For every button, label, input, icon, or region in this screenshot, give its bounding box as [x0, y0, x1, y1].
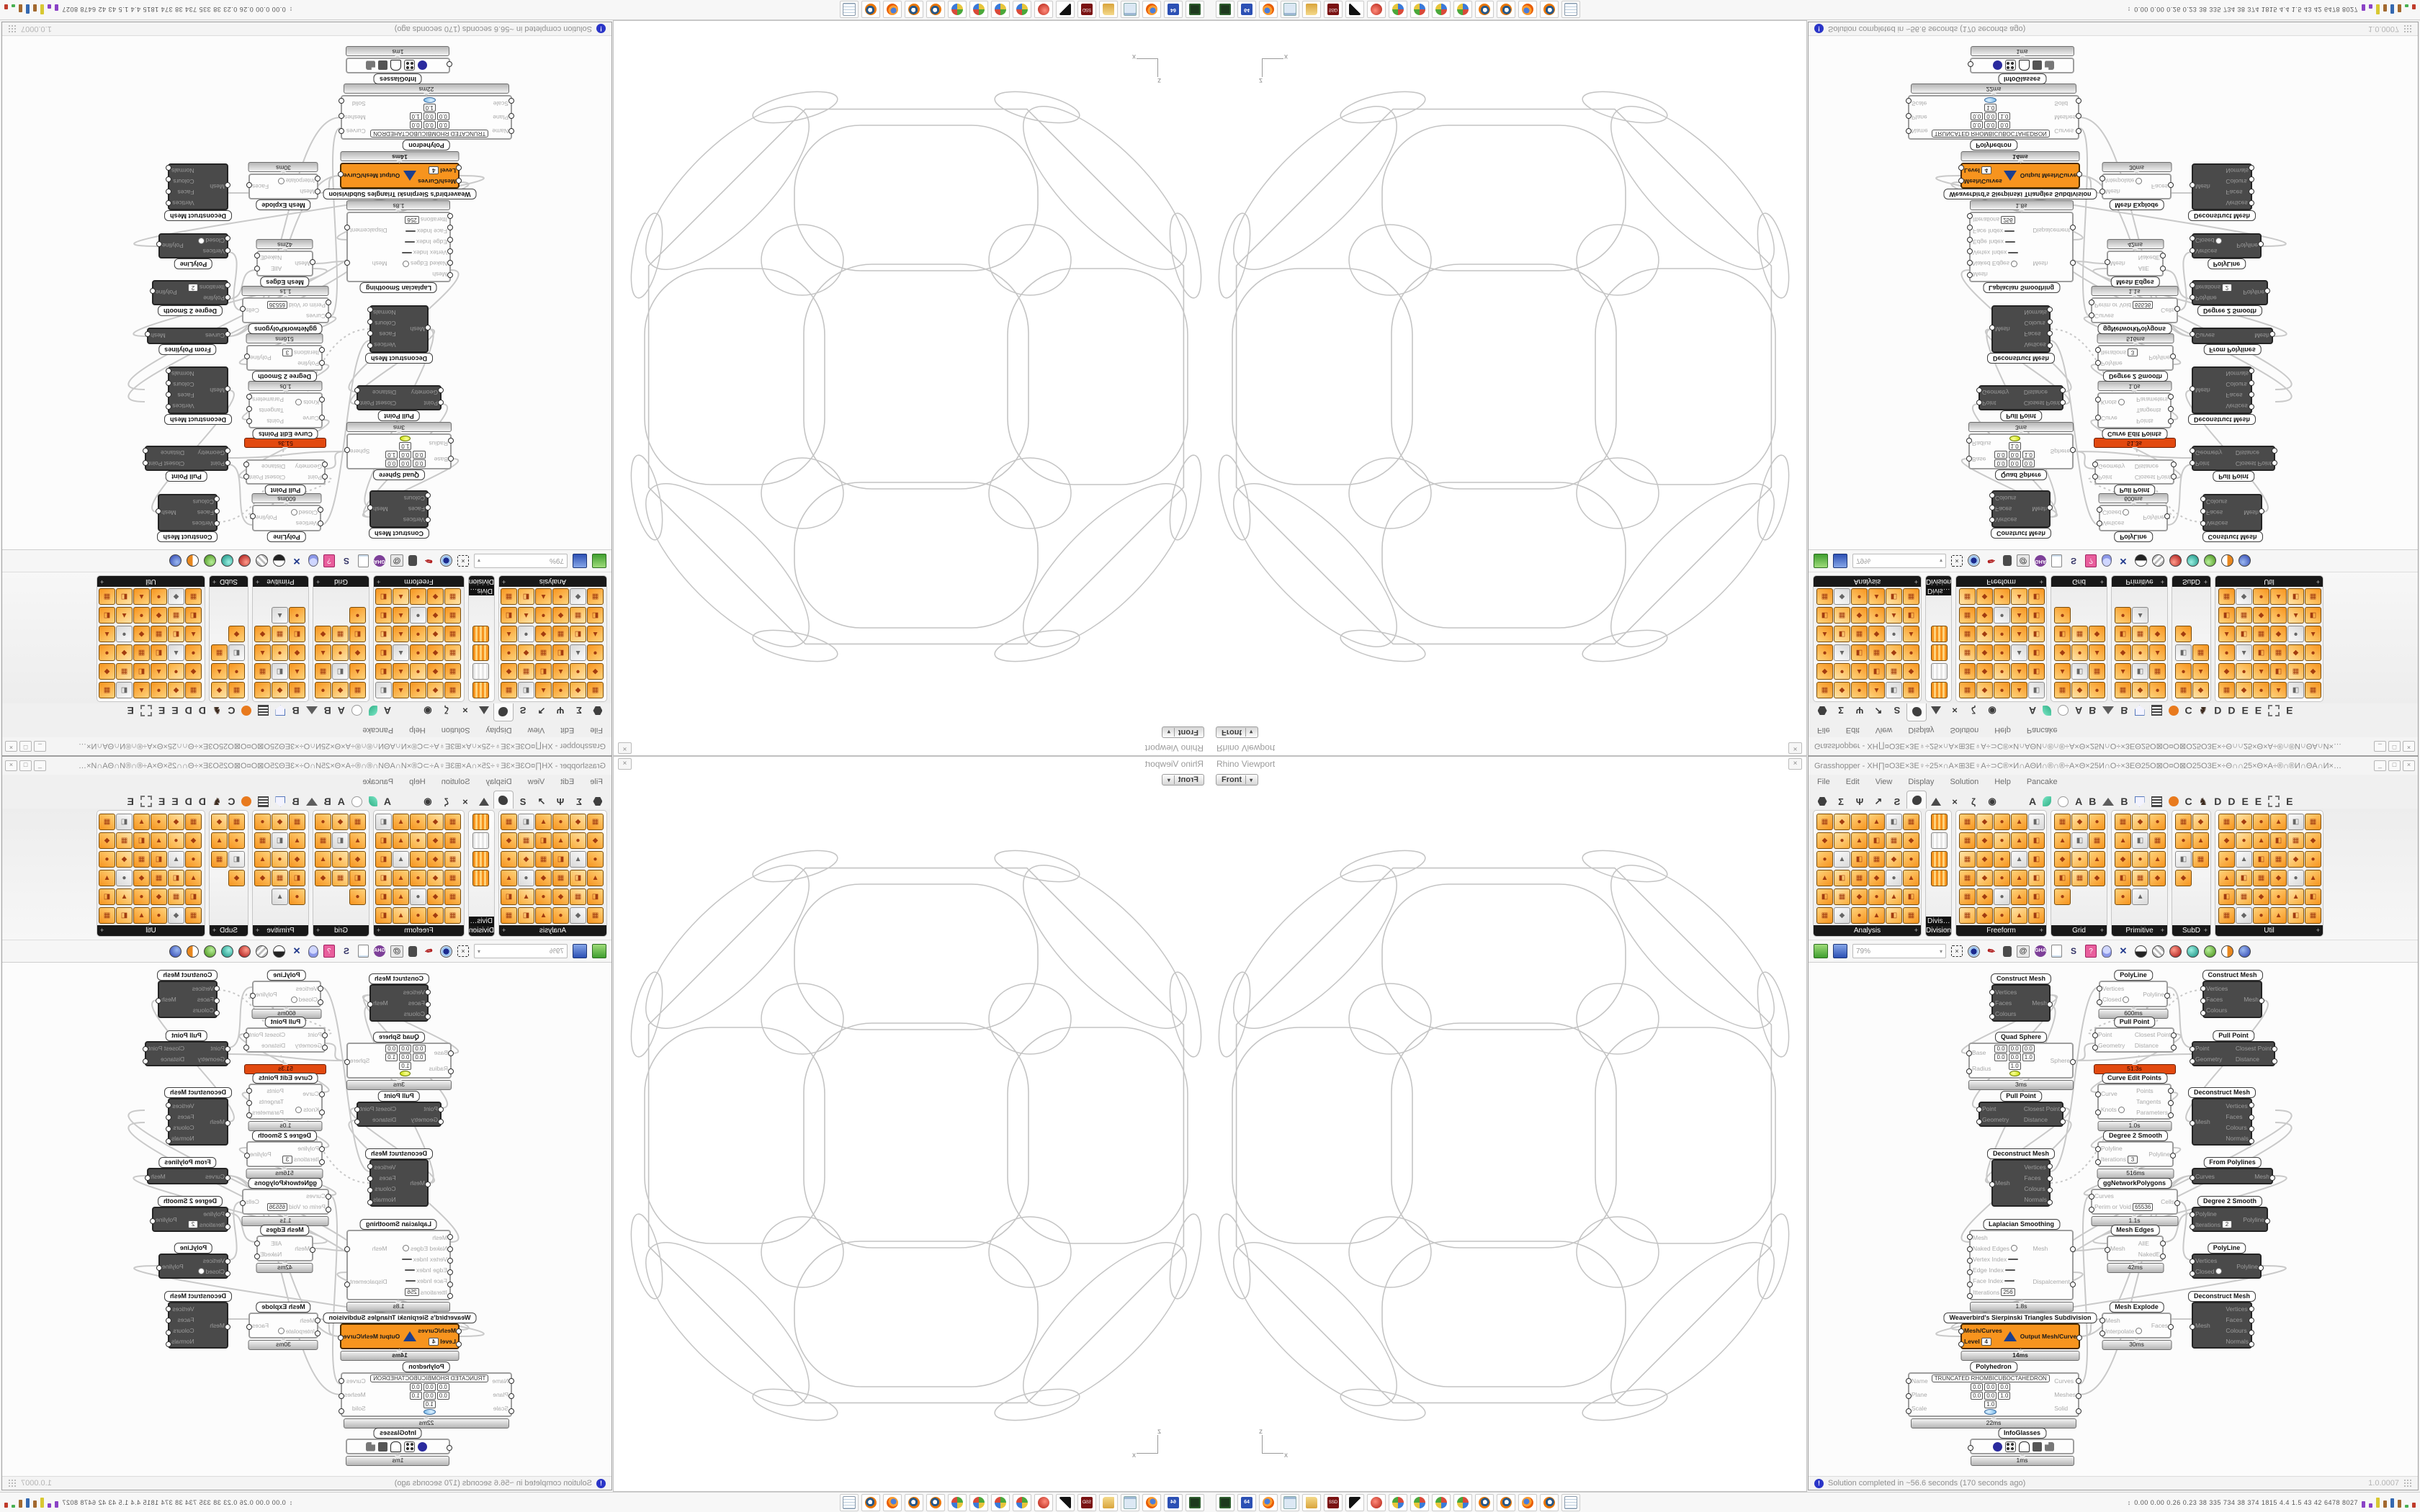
value-box[interactable]: 65536	[2133, 1203, 2153, 1211]
input-pin[interactable]	[2190, 1120, 2195, 1126]
value-box[interactable]: 0.0	[2022, 459, 2035, 467]
node-output[interactable]: Polyline	[2148, 1151, 2170, 1158]
component-icon[interactable]: ▲	[349, 663, 366, 680]
node-output[interactable]: Faces	[252, 1322, 269, 1329]
input-pin[interactable]	[1958, 1341, 1964, 1347]
node-input[interactable]: Point	[198, 1045, 225, 1052]
node-input[interactable]: Polyline	[2101, 1145, 2138, 1152]
panel-label[interactable]: Util+	[2215, 925, 2323, 936]
node-output[interactable]: Vertices	[171, 1102, 194, 1110]
grasshopper-titlebar[interactable]: Grasshopper - XH∏¤O3E×3E♀÷25×∩A×⊞3E♀A÷⊃C…	[1809, 757, 2418, 775]
component-icon[interactable]: ▦	[2054, 814, 2071, 830]
gh-node-polyline[interactable]: PolyLineVerticesClosedPolyline	[2192, 233, 2262, 258]
component-icon[interactable]: ◆	[518, 644, 534, 661]
addon-tab-E-14[interactable]: E	[171, 705, 178, 716]
preview-half-icon[interactable]	[2135, 555, 2147, 567]
resize-grip[interactable]	[2403, 1479, 2412, 1488]
component-icon[interactable]: ▲	[2011, 851, 2027, 868]
node-input[interactable]: Level4	[1964, 166, 2000, 174]
component-icon[interactable]: ◧	[1868, 663, 1885, 680]
component-icon[interactable]: ▲	[587, 870, 604, 886]
node-input[interactable]: Mesh	[295, 1245, 310, 1252]
component-icon[interactable]	[472, 870, 489, 886]
gh-node-weaverbird-s-sierpinski-triangles-subdivision[interactable]: Weaverbird's Sierpinski Triangles Subdiv…	[340, 1323, 460, 1349]
toggle-dot[interactable]	[278, 178, 284, 184]
output-pin[interactable]	[2160, 1254, 2166, 1259]
value-box[interactable]: 0.0	[410, 1383, 422, 1391]
component-icon[interactable]: ◧	[272, 663, 288, 680]
component-icon[interactable]: ▲	[2218, 626, 2235, 642]
node-input[interactable]: Plane	[492, 1391, 508, 1398]
taskbar-button-notepad[interactable]	[840, 1, 859, 19]
node-input[interactable]: Mesh	[1973, 1234, 2018, 1241]
component-icon[interactable]: ◧	[2054, 870, 2071, 886]
addon-tab-C-10[interactable]: C	[228, 796, 235, 807]
resize-grip[interactable]	[2403, 24, 2412, 33]
input-pin[interactable]	[326, 312, 331, 318]
taskbar-button-red-app[interactable]: SSD	[1077, 1494, 1096, 1511]
taskbar-button-paint-app[interactable]	[991, 1, 1010, 19]
component-icon[interactable]: ◧	[116, 907, 133, 924]
ig5-icon[interactable]	[366, 61, 375, 71]
close-icon[interactable]: ×	[5, 741, 17, 752]
component-icon[interactable]: ◧	[1886, 588, 1902, 605]
node-input[interactable]: Mesh/Curves	[1964, 1327, 2000, 1334]
component-icon[interactable]: ●	[349, 607, 366, 624]
component-icon[interactable]: ●	[2236, 832, 2252, 849]
addon-tab-dash-16[interactable]	[140, 705, 152, 716]
component-icon[interactable]: ◆	[427, 888, 444, 905]
component-icon[interactable]: ▲	[1903, 870, 1919, 886]
node-input[interactable]: Knots	[295, 1106, 319, 1113]
component-icon[interactable]: ●	[168, 832, 184, 849]
component-icon[interactable]: ▦	[1903, 682, 1919, 698]
node-output[interactable]: Distance	[2236, 449, 2272, 456]
component-icon[interactable]: ▦	[444, 907, 461, 924]
node-input[interactable]: Curves	[2195, 1173, 2215, 1180]
node-input[interactable]: Vertex Index	[1973, 249, 2018, 256]
node-input[interactable]: Itterations256	[402, 216, 447, 224]
addon-tab-E-15[interactable]: E	[158, 705, 165, 716]
node-input[interactable]: Geometry	[2098, 1042, 2125, 1049]
component-icon[interactable]: ●	[254, 682, 271, 698]
node-output[interactable]: Vertices	[2226, 1102, 2249, 1110]
component-icon[interactable]: ▲	[133, 588, 150, 605]
panel-expand-icon[interactable]: +	[212, 576, 216, 587]
gh-node-deconstruct-mesh[interactable]: Deconstruct MeshMeshVerticesFacesColours…	[168, 366, 228, 414]
component-icon[interactable]: ●	[570, 832, 586, 849]
menu-item-edit[interactable]: Edit	[560, 726, 574, 734]
node-output[interactable]: Polyline	[256, 991, 277, 998]
component-icon[interactable]: ◆	[2236, 588, 2252, 605]
node-input[interactable]: Geometry	[2098, 463, 2125, 470]
component-icon[interactable]: ▦	[2089, 663, 2105, 680]
addon-tab-blob-2[interactable]	[351, 706, 362, 716]
disable-wires-icon[interactable]: ✕	[290, 945, 303, 958]
component-icon[interactable]: ▲	[2011, 907, 2027, 924]
component-icon[interactable]: ◆	[1976, 607, 1993, 624]
panel-label[interactable]: SubD+	[210, 925, 248, 936]
node-output[interactable]: Mesh	[350, 1245, 387, 1252]
taskbar-button-calculator[interactable]	[1281, 1494, 1299, 1511]
component-icon[interactable]: ●	[1834, 832, 1850, 849]
node-output[interactable]: Parameters	[252, 1109, 284, 1116]
tab-sets[interactable]: Ψ	[551, 703, 570, 718]
component-icon[interactable]: ▦	[185, 907, 202, 924]
gh-node-mesh-edges[interactable]: Mesh EdgesMeshAllENakedE42ms	[256, 1236, 313, 1261]
node-input[interactable]: Mesh	[2105, 189, 2142, 196]
component-icon[interactable]: ◧	[2028, 888, 2045, 905]
panel-label[interactable]: SubD+	[2172, 576, 2210, 587]
preview-icon[interactable]	[440, 555, 452, 567]
panel-expand-icon[interactable]: +	[377, 576, 380, 587]
node-output[interactable]: Distance	[2024, 389, 2060, 396]
ig1-icon[interactable]	[418, 1442, 427, 1452]
component-icon[interactable]: ▲	[393, 663, 409, 680]
output-pin[interactable]	[143, 1046, 148, 1052]
node-output[interactable]: Curves	[344, 1377, 366, 1385]
component-icon[interactable]: ◧	[99, 888, 115, 905]
node-input[interactable]: Geometry	[295, 463, 322, 470]
component-icon[interactable]: ▲	[393, 644, 409, 661]
panel-label[interactable]: Division+	[469, 925, 494, 936]
node-input[interactable]: Name	[1912, 1377, 1928, 1385]
gh-node-degree-2-smooth[interactable]: Degree 2 SmoothPolylineIterations3Polyli…	[2097, 345, 2174, 371]
value-box[interactable]: 0.0	[1971, 121, 1983, 129]
node-output[interactable]: Polyline	[162, 243, 184, 250]
node-input[interactable]: Mesh	[1995, 325, 2010, 333]
panel-expand-icon[interactable]: +	[2100, 925, 2104, 936]
input-pin[interactable]	[225, 1175, 230, 1181]
component-icon[interactable]: ◧	[518, 907, 534, 924]
gh-node-curve-edit-points[interactable]: Curve Edit PointsCurveKnotsPointsTangent…	[248, 1084, 323, 1120]
input-pin[interactable]	[310, 259, 315, 265]
component-icon[interactable]: ●	[552, 907, 569, 924]
panel-expand-icon[interactable]: +	[502, 576, 506, 587]
component-icon[interactable]: ▦	[2253, 870, 2269, 886]
minimize-icon[interactable]: _	[34, 741, 46, 752]
gh-node-deconstruct-mesh[interactable]: Deconstruct MeshMeshVerticesFacesColours…	[2192, 366, 2252, 414]
component-icon[interactable]: ▦	[2071, 870, 2088, 886]
component-icon[interactable]: ▦	[99, 814, 115, 830]
input-pin[interactable]	[2089, 312, 2094, 318]
output-pin[interactable]	[2249, 380, 2254, 386]
tab-surface[interactable]	[493, 791, 514, 809]
node-output[interactable]: Distance	[360, 389, 396, 396]
node-output[interactable]: Distance	[2135, 463, 2171, 470]
value-box[interactable]	[405, 241, 415, 243]
node-output[interactable]: Mesh	[151, 1173, 166, 1180]
component-icon[interactable]	[472, 832, 489, 849]
node-input[interactable]: Polyline	[2195, 1210, 2232, 1218]
value-box[interactable]: 1.0	[2022, 1053, 2035, 1061]
panel-expand-icon[interactable]: +	[2316, 925, 2320, 936]
value-box[interactable]	[402, 252, 412, 253]
toggle-dot[interactable]	[2215, 238, 2222, 244]
close-icon[interactable]: ×	[5, 760, 17, 771]
taskbar-button-bw-app[interactable]	[1345, 1, 1364, 19]
component-icon[interactable]: ◧	[1834, 626, 1850, 642]
component-icon[interactable]: ▦	[1959, 663, 1976, 680]
gh-node-mesh-explode[interactable]: Mesh ExplodeMeshInterpolateFaces30ms	[248, 1313, 318, 1338]
value-box[interactable]: 1.0	[423, 104, 436, 112]
value-box[interactable]: 0.0	[413, 1053, 425, 1061]
taskbar-button-firefox[interactable]	[1518, 1494, 1537, 1511]
node-output[interactable]: Normals	[171, 1135, 194, 1142]
component-icon[interactable]: ▦	[552, 626, 569, 642]
component-icon[interactable]: ◆	[2132, 814, 2148, 830]
node-output[interactable]: AllE	[260, 266, 282, 273]
component-icon[interactable]: ▲	[552, 832, 569, 849]
component-icon[interactable]: ◆	[349, 644, 366, 661]
component-icon[interactable]: ▦	[133, 851, 150, 868]
component-icon[interactable]: ▦	[444, 851, 461, 868]
component-icon[interactable]: ◆	[427, 626, 444, 642]
node-output[interactable]: Normals	[2226, 371, 2249, 378]
gem-half-icon[interactable]	[187, 945, 199, 958]
value-box[interactable]: 256	[2001, 1288, 2015, 1296]
minimize-icon[interactable]: _	[34, 760, 46, 771]
component-icon[interactable]: ◆	[99, 663, 115, 680]
addon-tab-A-3[interactable]: A	[338, 796, 345, 807]
component-icon[interactable]: ▲	[393, 888, 409, 905]
document-icon[interactable]	[358, 554, 369, 567]
component-icon[interactable]: ◧	[1851, 851, 1868, 868]
input-pin[interactable]	[448, 1068, 454, 1074]
input-pin[interactable]	[2095, 360, 2101, 366]
node-input[interactable]: Mesh	[295, 260, 310, 267]
node-output[interactable]: Faces	[373, 331, 396, 338]
taskbar-button-file-manager[interactable]	[1099, 1, 1118, 19]
node-input[interactable]: Interpolate	[2105, 178, 2142, 185]
close-icon[interactable]: ×	[1788, 758, 1802, 770]
node-output[interactable]: Output Mesh/Curves	[2020, 172, 2076, 179]
value-box[interactable]: 0.0	[385, 459, 398, 467]
panel-label[interactable]: Freeform+	[374, 925, 464, 936]
node-output[interactable]: Colours	[2226, 382, 2249, 389]
taskbar-button-blender[interactable]	[926, 1494, 945, 1511]
input-pin[interactable]	[425, 492, 431, 498]
component-icon[interactable]: ▦	[315, 832, 331, 849]
component-icon[interactable]: ▲	[535, 814, 552, 830]
addon-tab-shield-7[interactable]	[2135, 796, 2145, 807]
component-icon[interactable]: ▦	[1868, 644, 1885, 661]
component-icon[interactable]: ◧	[2218, 607, 2235, 624]
node-input[interactable]: Face Index	[1973, 228, 2018, 235]
node-input[interactable]: Radius	[429, 1065, 448, 1072]
menu-item-solution[interactable]: Solution	[442, 726, 470, 734]
maximize-icon[interactable]: □	[19, 760, 32, 771]
gem-teal-icon[interactable]	[2187, 945, 2199, 958]
component-icon[interactable]: ▦	[332, 626, 349, 642]
input-pin[interactable]	[447, 237, 453, 243]
node-input[interactable]: Vertices	[2206, 520, 2228, 527]
value-box[interactable]: 0.0	[1971, 112, 1983, 120]
node-output[interactable]: Faces	[171, 189, 194, 196]
open-file-icon[interactable]	[1814, 944, 1828, 958]
finder-icon[interactable]: S	[340, 945, 353, 958]
value-box[interactable]: 65536	[267, 301, 287, 309]
component-icon[interactable]: ●	[1851, 682, 1868, 698]
menu-item-file[interactable]: File	[1817, 778, 1830, 786]
node-output[interactable]: Meshes	[344, 114, 366, 121]
value-box[interactable]: 4	[429, 166, 439, 174]
gem-red-icon[interactable]	[2169, 555, 2182, 567]
panel-expand-icon[interactable]: +	[2040, 576, 2043, 587]
input-pin[interactable]	[318, 521, 323, 526]
node-input[interactable]: Closed	[291, 509, 318, 516]
component-icon[interactable]: ▦	[1903, 907, 1919, 924]
output-pin[interactable]	[143, 448, 148, 454]
taskbar-button-firefox[interactable]	[1142, 1, 1161, 19]
component-icon[interactable]: ◧	[375, 682, 392, 698]
gha-assembly-icon[interactable]: GHA	[374, 945, 385, 957]
input-pin[interactable]	[1958, 178, 1964, 184]
node-output[interactable]: Closest Point	[2236, 460, 2272, 467]
node-input[interactable]: Curves	[2195, 333, 2215, 340]
component-icon[interactable]: ◧	[570, 626, 586, 642]
taskbar-button-firefox[interactable]	[1259, 1, 1278, 19]
node-input[interactable]: Face Index	[1973, 1277, 2018, 1284]
component-icon[interactable]: ◆	[501, 663, 517, 680]
gh-node-deconstruct-mesh[interactable]: Deconstruct MeshMeshVerticesFacesColours…	[1991, 305, 2051, 353]
component-icon[interactable]: ◧	[375, 870, 392, 886]
component-icon[interactable]: ●	[552, 682, 569, 698]
component-icon[interactable]: ◧	[535, 663, 552, 680]
open-file-icon[interactable]	[592, 554, 606, 568]
output-pin[interactable]	[246, 182, 252, 188]
panel-label[interactable]: Util+	[2215, 576, 2323, 587]
output-pin[interactable]	[2264, 1218, 2270, 1224]
menu-item-pancake[interactable]: Pancake	[2027, 778, 2058, 786]
input-pin[interactable]	[225, 1046, 230, 1052]
addon-tab-E-17[interactable]: E	[2286, 705, 2293, 716]
component-icon[interactable]: ▲	[2089, 851, 2105, 868]
component-icon[interactable]: ▲	[133, 907, 150, 924]
panel-expand-icon[interactable]: +	[2316, 576, 2320, 587]
node-input[interactable]: Mesh/Curves	[1964, 178, 2000, 185]
output-pin[interactable]	[2070, 447, 2076, 453]
component-icon[interactable]: ●	[228, 663, 245, 680]
panel-expand-icon[interactable]: +	[212, 925, 216, 936]
node-input[interactable]: Name	[1912, 127, 1928, 135]
tab-vector[interactable]: ↗	[1869, 794, 1888, 809]
input-pin[interactable]	[456, 1341, 462, 1347]
node-output[interactable]: Closest Point	[2135, 474, 2171, 481]
value-box[interactable]: 0.0	[423, 112, 436, 120]
panel-expand-icon[interactable]: +	[1945, 576, 1948, 587]
component-icon[interactable]	[472, 663, 489, 680]
hide-window-icon[interactable]	[408, 556, 417, 567]
node-output[interactable]: Polyline	[256, 515, 277, 522]
component-icon[interactable]: ●	[2115, 888, 2131, 905]
node-output[interactable]: Faces	[2226, 189, 2249, 196]
node-input[interactable]: Closed	[198, 1268, 225, 1275]
addon-tab-B-6[interactable]: B	[292, 796, 300, 807]
component-icon[interactable]: ◧	[2054, 626, 2071, 642]
node-input[interactable]: Point	[411, 1105, 438, 1112]
taskbar-button-paint-app[interactable]	[1013, 1494, 1031, 1511]
node-input[interactable]: Curves	[267, 1192, 326, 1200]
component-icon[interactable]: ▦	[272, 870, 288, 886]
value-box[interactable]: 3	[282, 348, 292, 356]
input-pin[interactable]	[456, 1328, 462, 1334]
component-icon[interactable]: ●	[1851, 814, 1868, 830]
component-icon[interactable]: ▲	[1903, 626, 1919, 642]
component-icon[interactable]	[1931, 832, 1948, 849]
addon-tab-C-10[interactable]: C	[2185, 705, 2192, 716]
node-input[interactable]: Edge Index	[1973, 1266, 2018, 1274]
toggle-dot[interactable]	[2123, 509, 2129, 516]
component-icon[interactable]: ●	[2054, 607, 2071, 624]
node-input[interactable]: Base	[429, 1049, 448, 1056]
taskbar-button-calculator[interactable]	[1281, 1, 1299, 19]
menu-item-solution[interactable]: Solution	[1950, 778, 1978, 786]
node-output[interactable]: Colours	[2024, 1185, 2047, 1192]
tab-surface[interactable]	[493, 703, 514, 721]
component-icon[interactable]: ◧	[1886, 682, 1902, 698]
addon-tab-bird-11[interactable]: ♞	[2199, 706, 2208, 716]
node-output[interactable]: Curves	[2054, 1377, 2076, 1385]
menu-item-pancake[interactable]: Pancake	[362, 778, 393, 786]
output-pin[interactable]	[339, 128, 344, 134]
component-icon[interactable]: ◧	[2028, 814, 2045, 830]
component-icon[interactable]: ◆	[168, 588, 184, 605]
zoom-dropdown[interactable]: 79%▾	[1852, 554, 1946, 568]
panel-expand-icon[interactable]: +	[472, 576, 475, 587]
ig4-icon[interactable]	[2033, 1442, 2042, 1452]
addon-tab-E-17[interactable]: E	[2286, 796, 2293, 807]
addon-tab-bird-11[interactable]: ♞	[2199, 796, 2208, 806]
component-icon[interactable]: ▦	[1959, 607, 1976, 624]
node-input[interactable]: Iterations2	[188, 284, 225, 292]
component-icon[interactable]: ▦	[1959, 832, 1976, 849]
node-output[interactable]: Colours	[373, 320, 396, 328]
component-icon[interactable]: ◧	[151, 851, 167, 868]
panel-expand-icon[interactable]: +	[100, 925, 104, 936]
output-pin[interactable]	[2171, 1032, 2177, 1038]
node-output[interactable]: Vertices	[2024, 342, 2047, 349]
component-icon[interactable]: ▲	[99, 870, 115, 886]
component-icon[interactable]: ▲	[2270, 682, 2287, 698]
component-icon[interactable]: ●	[2089, 682, 2105, 698]
input-pin[interactable]	[2190, 1046, 2195, 1052]
value-box[interactable]: 0.0	[437, 112, 449, 120]
component-icon[interactable]: ◆	[2236, 814, 2252, 830]
output-pin[interactable]	[2259, 998, 2264, 1004]
node-input[interactable]: Mesh/Curves	[420, 178, 456, 185]
component-icon[interactable]: ▲	[393, 626, 409, 642]
addon-tab-blob-2[interactable]	[2058, 706, 2069, 716]
taskbar-button-paint-app[interactable]	[1389, 1, 1407, 19]
component-icon[interactable]: ●	[410, 588, 426, 605]
node-input[interactable]: Closed	[2195, 1268, 2222, 1275]
input-pin[interactable]	[1968, 1445, 1973, 1451]
node-input[interactable]: Iterations3	[282, 1156, 319, 1164]
gha-assembly-icon[interactable]: GHA	[2035, 555, 2046, 567]
menu-item-edit[interactable]: Edit	[1846, 726, 1860, 734]
component-icon[interactable]: ●	[501, 644, 517, 661]
component-icon[interactable]: ◧	[2253, 851, 2269, 868]
component-icon[interactable]: ◧	[2287, 588, 2304, 605]
finder-icon[interactable]: S	[340, 554, 353, 567]
input-pin[interactable]	[1967, 1293, 1973, 1299]
component-icon[interactable]: ●	[1886, 626, 1902, 642]
component-icon[interactable]: ◧	[1834, 870, 1850, 886]
component-icon[interactable]: ●	[1994, 832, 2010, 849]
value-box[interactable]: 0.0	[437, 121, 449, 129]
tab-curve[interactable]: Ƨ	[514, 703, 532, 718]
